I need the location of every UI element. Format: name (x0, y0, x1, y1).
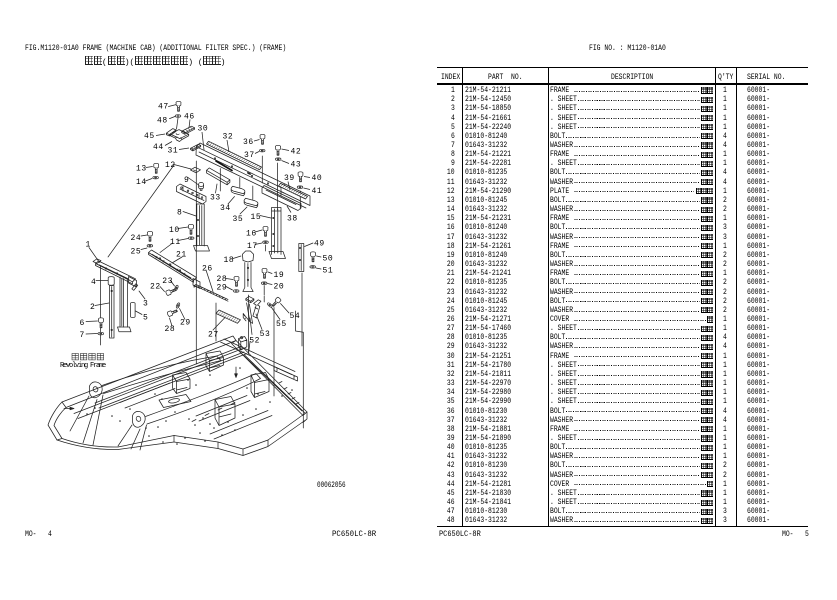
svg-text:37: 37 (244, 151, 255, 160)
svg-text:4: 4 (91, 278, 96, 287)
svg-text:16: 16 (246, 229, 257, 238)
svg-text:22: 22 (150, 282, 161, 291)
svg-text:51: 51 (323, 267, 334, 276)
svg-text:54: 54 (290, 312, 301, 321)
svg-text:29: 29 (180, 318, 191, 327)
svg-text:25: 25 (131, 247, 142, 256)
svg-text:31: 31 (168, 146, 179, 155)
svg-text:46: 46 (184, 112, 195, 121)
svg-text:43: 43 (291, 161, 302, 170)
svg-text:42: 42 (291, 147, 302, 156)
svg-text:17: 17 (247, 242, 258, 251)
svg-text:6: 6 (80, 319, 85, 328)
svg-text:33: 33 (210, 193, 221, 202)
svg-text:38: 38 (287, 214, 298, 223)
svg-text:14: 14 (136, 178, 147, 187)
svg-text:41: 41 (312, 187, 323, 196)
svg-text:35: 35 (233, 215, 244, 224)
svg-text:7: 7 (80, 331, 85, 340)
svg-text:39: 39 (284, 174, 295, 183)
svg-text:44: 44 (153, 143, 164, 152)
svg-text:34: 34 (220, 204, 231, 213)
svg-text:24: 24 (131, 234, 142, 243)
svg-text:1: 1 (86, 240, 91, 249)
svg-text:50: 50 (323, 254, 334, 263)
svg-text:13: 13 (136, 164, 147, 173)
svg-text:8: 8 (177, 209, 182, 218)
svg-text:48: 48 (157, 116, 168, 125)
svg-text:47: 47 (158, 102, 169, 111)
svg-text:30: 30 (198, 124, 209, 133)
svg-text:49: 49 (314, 239, 325, 248)
svg-text:5: 5 (143, 313, 148, 322)
svg-text:9: 9 (184, 176, 189, 185)
svg-text:12: 12 (165, 161, 176, 170)
svg-text:20: 20 (274, 282, 285, 291)
svg-text:Revolving Frame: Revolving Frame (60, 362, 106, 370)
svg-text:23: 23 (162, 277, 173, 286)
svg-text:27: 27 (208, 331, 219, 340)
svg-text:3: 3 (143, 299, 148, 308)
svg-text:32: 32 (223, 132, 234, 141)
svg-text:29: 29 (217, 283, 228, 292)
svg-text:55: 55 (276, 320, 287, 329)
svg-text:52: 52 (249, 336, 260, 345)
svg-text:18: 18 (224, 256, 235, 265)
svg-text:53: 53 (260, 330, 271, 339)
svg-text:11: 11 (170, 238, 181, 247)
svg-text:21: 21 (176, 251, 187, 260)
svg-text:26: 26 (202, 264, 213, 273)
svg-text:19: 19 (274, 271, 285, 280)
svg-text:15: 15 (251, 213, 262, 222)
svg-text:28: 28 (165, 325, 176, 334)
svg-text:2: 2 (90, 303, 95, 312)
svg-text:36: 36 (243, 138, 254, 147)
svg-text:40: 40 (312, 174, 323, 183)
svg-text:10: 10 (169, 226, 180, 235)
svg-text:45: 45 (144, 132, 155, 141)
